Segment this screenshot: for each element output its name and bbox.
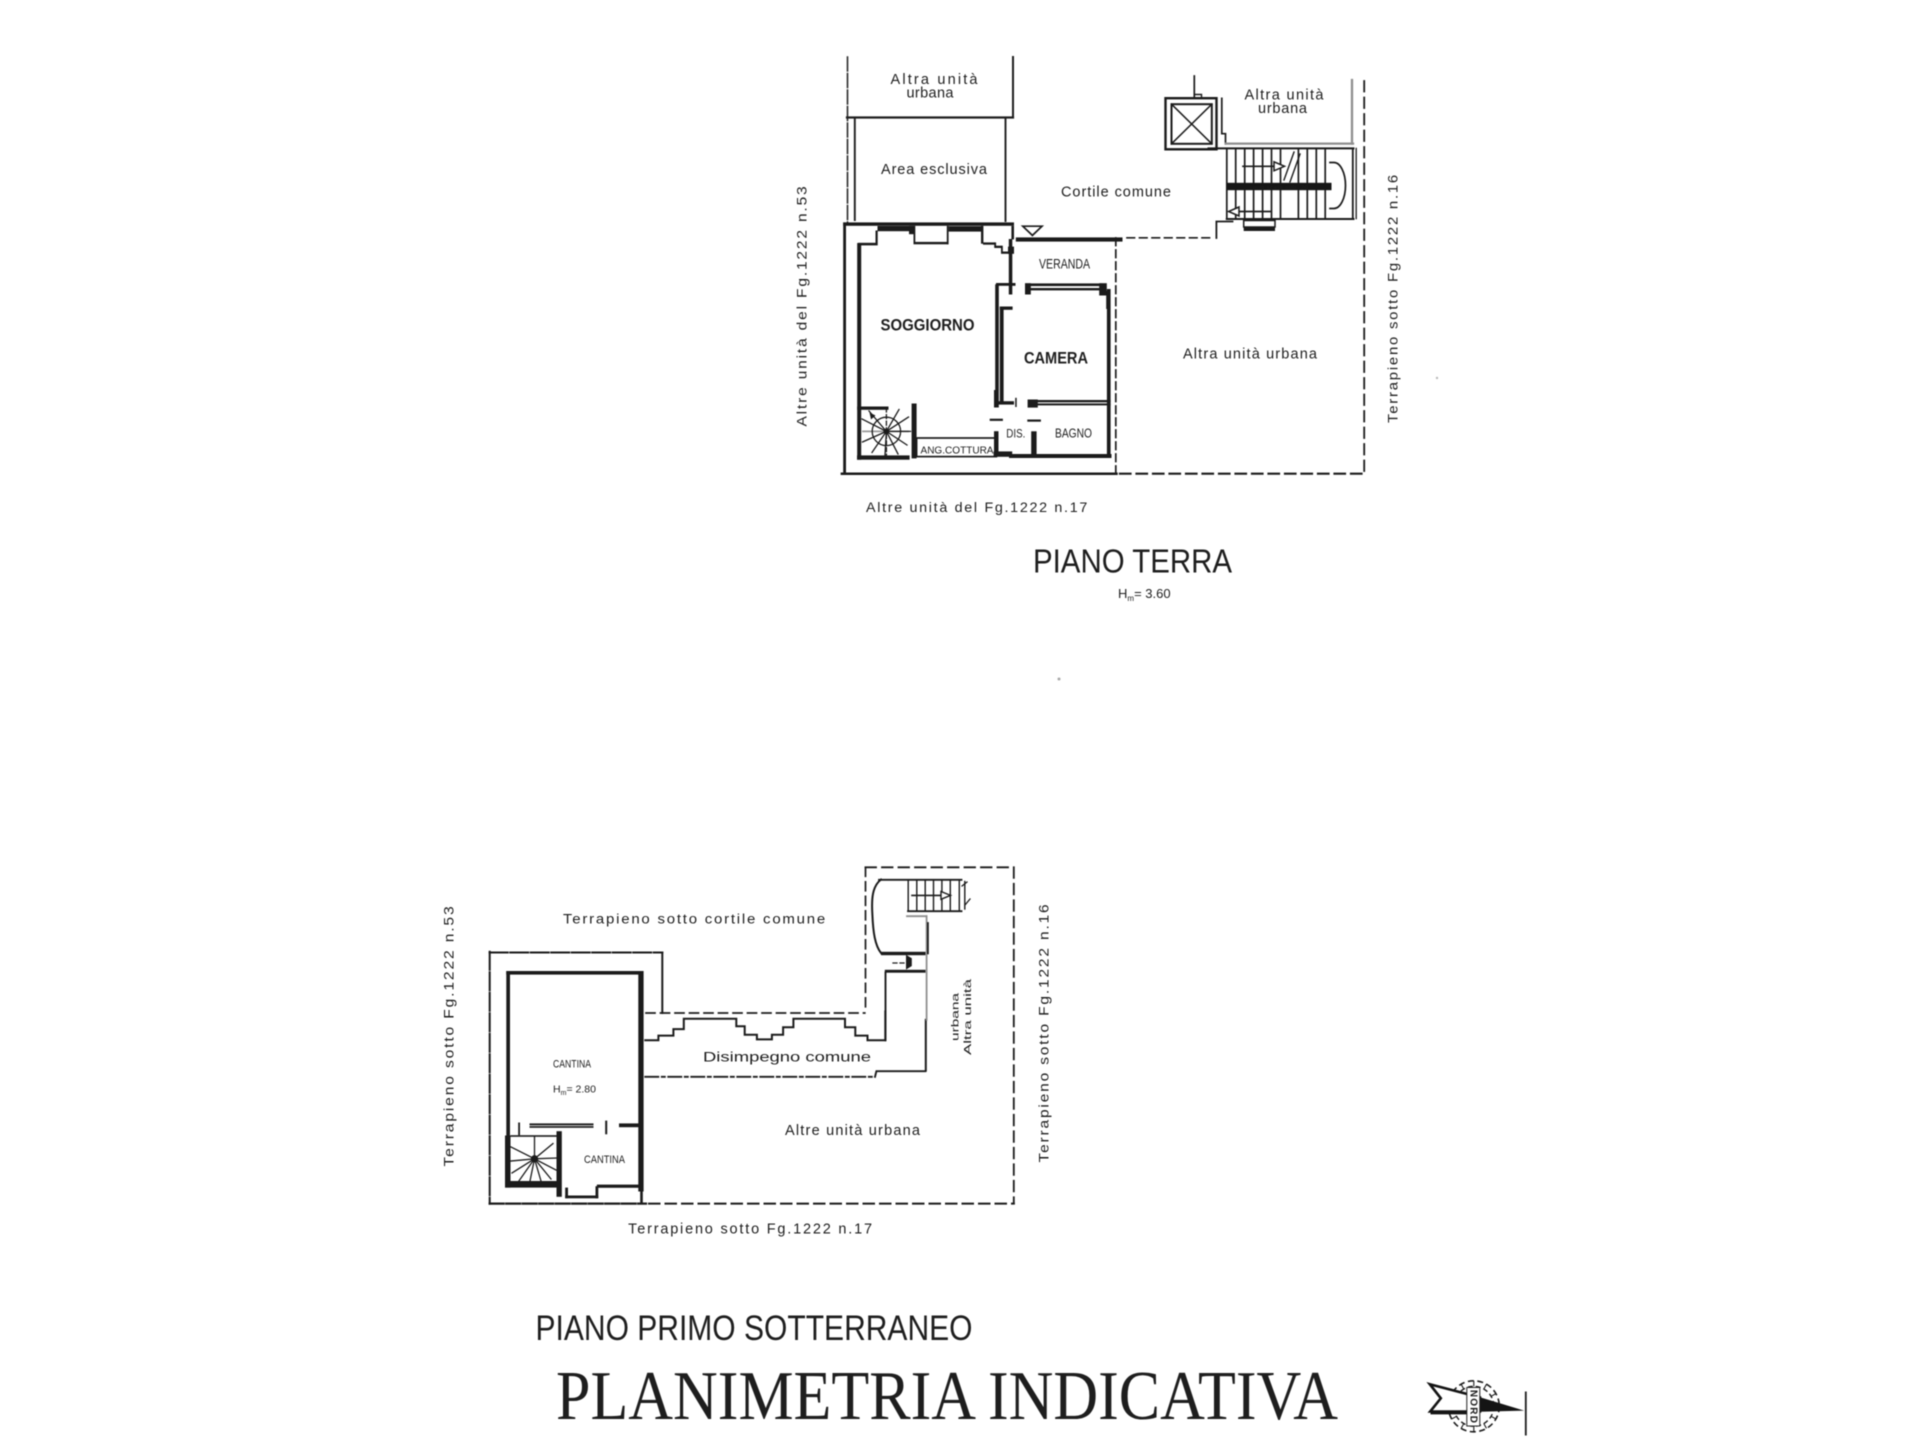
svg-text:Terrapieno sotto Fg.1222 n.53: Terrapieno sotto Fg.1222 n.53 (442, 905, 457, 1167)
svg-text:Area esclusiva: Area esclusiva (881, 162, 988, 178)
svg-text:NORD: NORD (1468, 1390, 1479, 1424)
svg-text:Altre unità del Fg.1222 n.53: Altre unità del Fg.1222 n.53 (795, 185, 810, 427)
svg-text:PIANO TERRA: PIANO TERRA (1033, 543, 1232, 580)
svg-text:Terrapieno sotto Fg.1222 n.16: Terrapieno sotto Fg.1222 n.16 (1386, 173, 1401, 423)
svg-text:Disimpegno comune: Disimpegno comune (703, 1049, 871, 1065)
svg-text:PLANIMETRIA INDICATIVA: PLANIMETRIA INDICATIVA (556, 1358, 1338, 1435)
svg-text:vano scala sub. 20: vano scala sub. 20 (1249, 185, 1308, 191)
svg-text:Altra unità: Altra unità (962, 979, 974, 1055)
svg-text:Cortile comune: Cortile comune (1061, 185, 1171, 201)
svg-text:VERANDA: VERANDA (1039, 257, 1090, 272)
svg-text:Terrapieno sotto Fg.1222 n.16: Terrapieno sotto Fg.1222 n.16 (1037, 903, 1052, 1163)
svg-text:Altra unità urbana: Altra unità urbana (1183, 347, 1318, 363)
svg-text:Hm= 3.60: Hm= 3.60 (1118, 586, 1171, 603)
svg-text:urbana: urbana (950, 993, 962, 1041)
svg-text:SOGGIORNO: SOGGIORNO (881, 316, 975, 334)
svg-text:Hm= 2.80: Hm= 2.80 (553, 1084, 596, 1098)
svg-text:CAMERA: CAMERA (1024, 349, 1088, 368)
svg-text:Altre unità urbana: Altre unità urbana (785, 1123, 921, 1139)
svg-text:Terrapieno sotto cortile comun: Terrapieno sotto cortile comune (563, 912, 827, 927)
svg-text:urbana: urbana (1258, 101, 1308, 117)
svg-text:BAGNO: BAGNO (1055, 426, 1092, 440)
svg-text:CANTINA: CANTINA (553, 1058, 592, 1070)
svg-text:Terrapieno sotto Fg.1222 n.17: Terrapieno sotto Fg.1222 n.17 (628, 1222, 874, 1238)
svg-text:CANTINA: CANTINA (584, 1154, 626, 1166)
svg-text:PIANO PRIMO SOTTERRANEO: PIANO PRIMO SOTTERRANEO (536, 1308, 973, 1348)
svg-text:DIS.: DIS. (1006, 426, 1025, 440)
svg-text:ANG.COTTURA: ANG.COTTURA (921, 445, 994, 457)
svg-text:Altre unità del Fg.1222 n.17: Altre unità del Fg.1222 n.17 (866, 500, 1089, 515)
svg-text:urbana: urbana (907, 86, 955, 102)
